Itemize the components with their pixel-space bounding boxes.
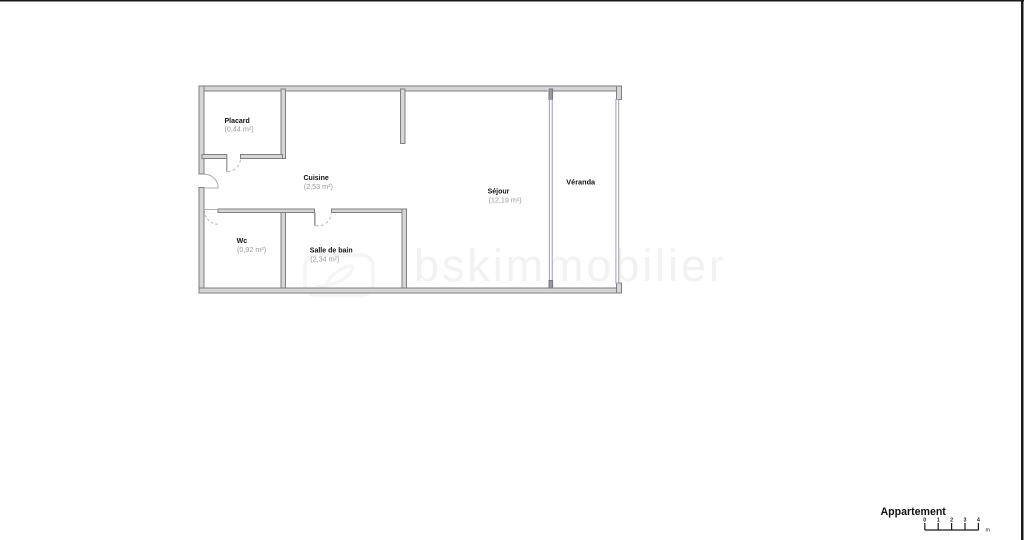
svg-text:3: 3 [964, 518, 967, 524]
svg-text:Appartement: Appartement [881, 506, 947, 518]
svg-text:4: 4 [977, 518, 980, 524]
svg-text:Wc: Wc [237, 238, 248, 245]
svg-text:0: 0 [923, 518, 926, 524]
svg-text:(12,19 m²): (12,19 m²) [489, 196, 522, 205]
svg-text:(2,34 m²): (2,34 m²) [310, 255, 339, 264]
svg-text:(2,53 m²): (2,53 m²) [304, 182, 333, 191]
svg-text:Salle de bain: Salle de bain [310, 247, 353, 254]
svg-text:Véranda: Véranda [566, 177, 596, 186]
svg-text:m: m [986, 528, 991, 534]
svg-text:bskimmobilier: bskimmobilier [414, 240, 727, 291]
svg-text:(0,92 m²): (0,92 m²) [237, 245, 266, 254]
svg-text:2: 2 [950, 518, 953, 524]
svg-text:1: 1 [937, 518, 940, 524]
svg-text:(0,44 m²): (0,44 m²) [225, 125, 254, 134]
svg-text:Séjour: Séjour [488, 188, 510, 195]
